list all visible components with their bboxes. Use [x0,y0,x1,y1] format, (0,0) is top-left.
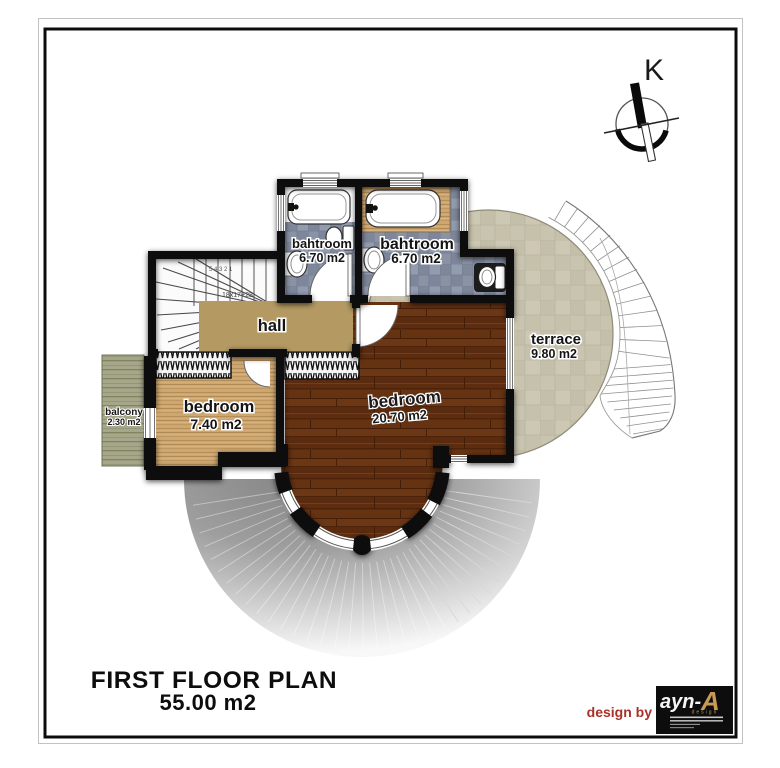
svg-text:5 4 3 2 1: 5 4 3 2 1 [209,267,233,273]
svg-text:bahtroom: bahtroom [292,236,352,251]
svg-text:6.70 m2: 6.70 m2 [391,251,441,266]
svg-text:hall: hall [258,317,286,335]
svg-text:bedroom: bedroom [184,398,255,416]
svg-text:K: K [644,54,664,87]
svg-text:2.30 m2: 2.30 m2 [107,417,140,427]
svg-text:18x17+28: 18x17+28 [222,292,253,299]
svg-text:terrace: terrace [531,331,581,348]
svg-text:design by: design by [587,704,653,720]
svg-text:design: design [692,710,719,716]
svg-text:6.70 m2: 6.70 m2 [299,251,345,265]
svg-text:55.00 m2: 55.00 m2 [160,690,257,715]
svg-text:7.40 m2: 7.40 m2 [190,416,242,432]
svg-text:9.80 m2: 9.80 m2 [531,347,577,361]
